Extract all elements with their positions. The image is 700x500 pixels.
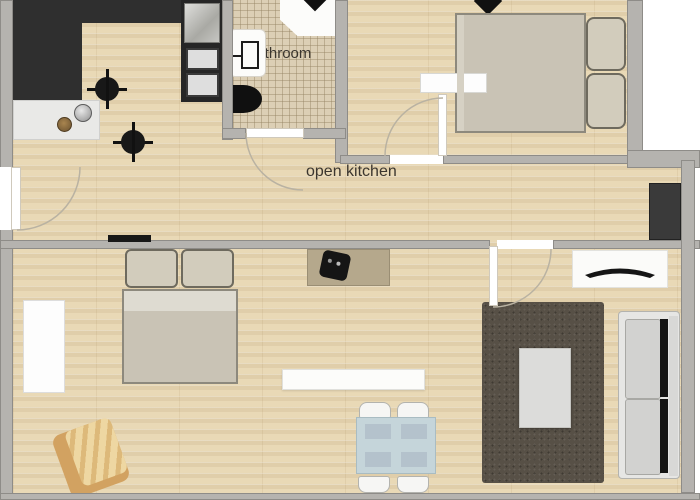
bedroom-door-opening [390,155,443,164]
seat-under-glass [365,452,391,467]
bed-pillow [586,17,626,71]
dining-table [356,417,436,474]
stove-burner-icon [87,69,127,109]
shelf [282,369,425,390]
fridge-top-icon [184,3,220,43]
wall-divider-left [0,240,490,249]
wall-bedroom-bottom [340,155,390,164]
sofa-backrest [669,316,678,476]
wall-bathroom-bottom [222,128,246,139]
bed-mattress [122,289,238,384]
wall-bottom [0,493,700,500]
floor-plan: bathroom open kitchen [0,0,700,500]
bathroom-sink-basin-icon [241,41,259,69]
sofa-cushion [625,319,661,399]
sofa-back-gap [660,319,668,397]
living-room-door-leaf [489,246,498,306]
oven-icon [186,48,219,70]
seat-under-glass [401,452,427,467]
sofa-back-gap [660,399,668,473]
desk-chair [318,249,351,281]
dining-chair [358,476,390,493]
bathroom-door-leaf [246,128,304,138]
wardrobe [23,300,65,393]
desk-chair-detail [327,258,332,263]
wall-left [0,0,13,500]
seat-under-glass [365,424,391,439]
bed-sheet-edge [457,15,464,131]
sofa-cushion [625,399,661,475]
entrance-door-leaf [11,167,21,230]
wall-bedroom-bottom [443,155,645,164]
wall-divider-right [553,240,700,249]
bed-pillow [586,73,626,129]
coffee-table [519,348,571,428]
bedroom-door-leaf [438,94,447,156]
seat-under-glass [401,424,427,439]
wall-bathroom-left [222,0,233,140]
wardrobe [420,73,487,93]
outside-area [643,0,700,151]
bed-sheet-edge [124,291,236,311]
wall-right [681,160,695,493]
bed-pillow [125,249,178,288]
sofa [618,311,680,479]
kitchen-sink-icon [74,104,92,122]
oven-icon [186,73,219,97]
desk-chair-detail [336,261,341,266]
stove-burner-icon [113,122,153,162]
tv-stand [572,250,668,288]
radiator-icon [108,235,151,242]
dining-chair [397,476,429,493]
tall-cabinet [649,183,681,240]
living-room-door-opening [497,240,553,249]
kitchen-counter-left [13,0,82,100]
wall-bedroom-right [627,0,643,152]
bathroom-faucet-icon [233,55,242,57]
wall-bathroom-bottom [303,128,346,139]
open-kitchen-label: open kitchen [306,163,397,181]
kitchen-bowl-icon [57,117,72,132]
bed-pillow [181,249,234,288]
